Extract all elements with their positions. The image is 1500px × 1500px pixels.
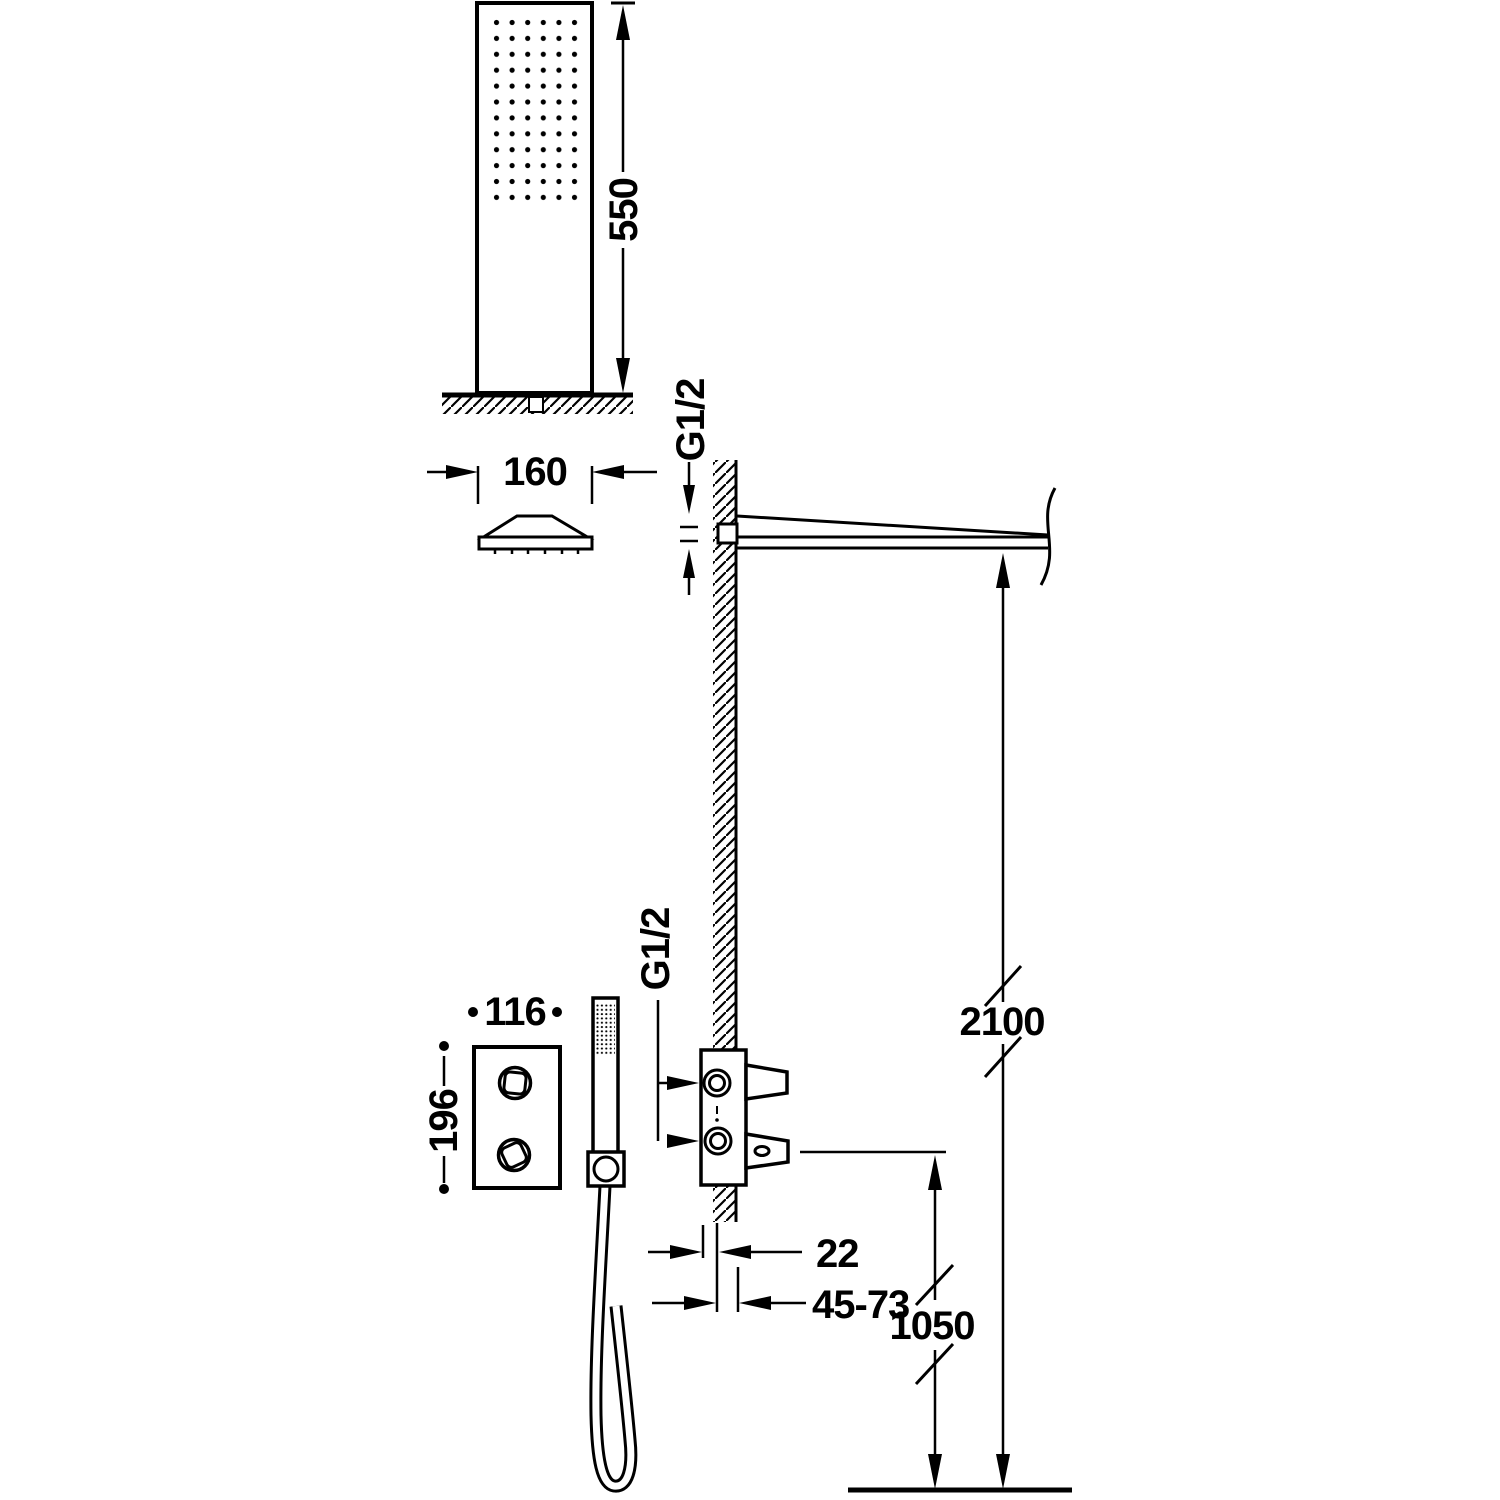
mixer-port-bottom (705, 1128, 731, 1154)
holder-knuckle (594, 1157, 618, 1181)
arrow-right-icon (670, 1245, 702, 1259)
dot-terminator (439, 1041, 449, 1051)
control-panel (474, 1047, 560, 1188)
dot-terminator (552, 1007, 562, 1017)
arm-thread-label: G1/2 (669, 379, 713, 462)
centerline-dot (715, 1118, 719, 1122)
arrow-down-icon (616, 358, 630, 393)
dim-550-label: 550 (602, 178, 646, 242)
dim-arm-install-height: 2100 (960, 553, 1045, 1489)
arrow-down-icon (928, 1454, 942, 1489)
dim-valve-depth-range: 45-73 (652, 1267, 909, 1327)
arm-wall-connector (718, 524, 737, 543)
arrow-down-icon (683, 485, 695, 514)
handle-slot (755, 1147, 769, 1156)
wand-spray-face (596, 1004, 615, 1056)
shower-head-profile (479, 516, 592, 554)
dim-head-width: 160 (427, 450, 657, 504)
shower-installation-diagram: 550 160 G1/2 (0, 0, 1500, 1500)
arrow-left-icon (592, 465, 624, 479)
technical-drawing-page: 550 160 G1/2 (0, 0, 1500, 1500)
arrow-right-icon (684, 1296, 716, 1310)
arrow-right-icon (446, 465, 478, 479)
mixer-handle-top (746, 1065, 787, 1099)
column-outlet-connector (529, 397, 543, 412)
dot-terminator (439, 1184, 449, 1194)
dim-196-label: 196 (422, 1089, 466, 1153)
mixer-port-top (704, 1070, 730, 1096)
arrow-left-icon (719, 1245, 751, 1259)
knob-bottom (499, 1140, 530, 1171)
knob-top (500, 1068, 531, 1099)
hand-shower (588, 998, 631, 1486)
dim-column-height: 550 (602, 3, 646, 393)
dot-terminator (468, 1007, 478, 1017)
dim-panel-height: 196 (422, 1041, 466, 1194)
outlet-thread-label: G1/2 (634, 908, 678, 991)
dim-22-label: 22 (816, 1232, 859, 1276)
dim-outlet-thread: G1/2 (634, 908, 699, 1148)
arrow-right-icon (667, 1076, 699, 1090)
arrow-right-icon (667, 1134, 699, 1148)
spray-nozzle-grid (493, 19, 579, 207)
arrow-up-icon (616, 5, 630, 40)
dim-160-label: 160 (503, 450, 567, 494)
mixer-valve (701, 1050, 788, 1185)
arrow-down-icon (996, 1454, 1010, 1489)
dim-arm-thread: G1/2 (669, 379, 713, 595)
dim-2100-label: 2100 (960, 1000, 1045, 1044)
arrow-up-icon (683, 549, 695, 578)
dim-45-73-label: 45-73 (812, 1283, 909, 1327)
arrow-up-icon (928, 1155, 942, 1190)
arrow-left-icon (739, 1296, 771, 1310)
arrow-up-icon (996, 553, 1010, 588)
dim-116-label: 116 (484, 990, 546, 1034)
dim-panel-width: 116 (468, 990, 562, 1034)
